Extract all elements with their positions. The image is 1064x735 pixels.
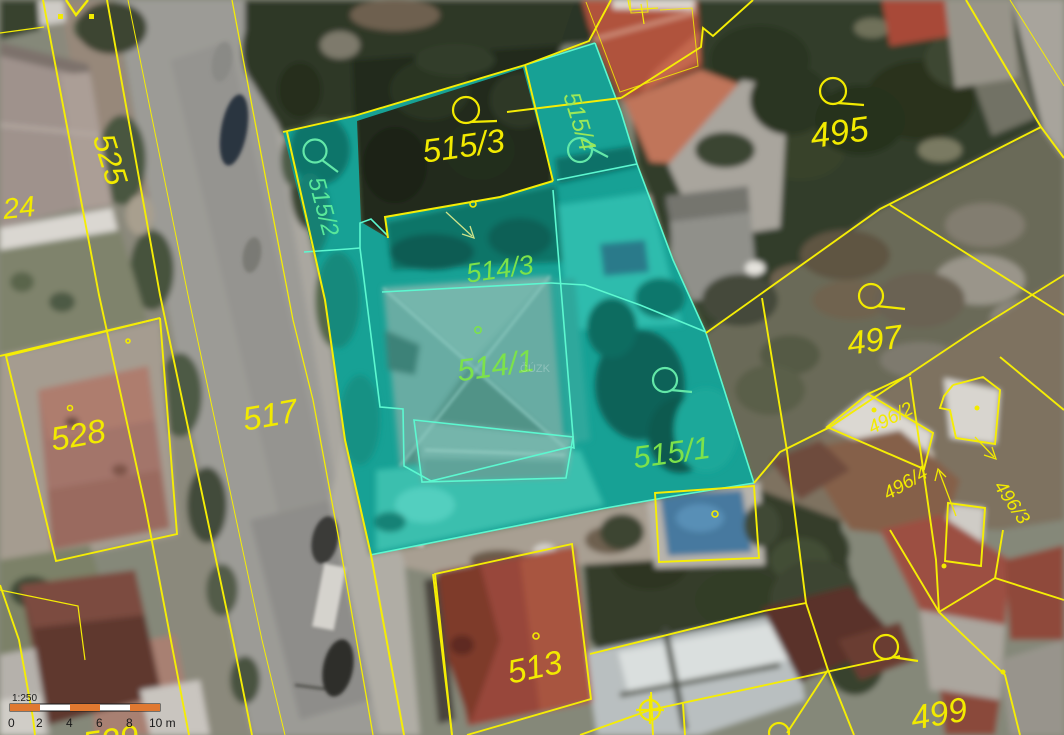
svg-text:495: 495 xyxy=(808,109,872,156)
svg-text:10 m: 10 m xyxy=(149,716,176,730)
svg-text:2: 2 xyxy=(36,716,43,730)
svg-text:ČÚZK: ČÚZK xyxy=(520,362,551,375)
svg-text:0: 0 xyxy=(8,716,15,730)
svg-text:6: 6 xyxy=(96,716,103,730)
svg-text:497: 497 xyxy=(845,317,906,362)
svg-text:8: 8 xyxy=(126,716,133,730)
svg-text:4: 4 xyxy=(66,716,73,730)
svg-text:24: 24 xyxy=(0,191,36,226)
svg-text:1:250: 1:250 xyxy=(12,693,37,704)
